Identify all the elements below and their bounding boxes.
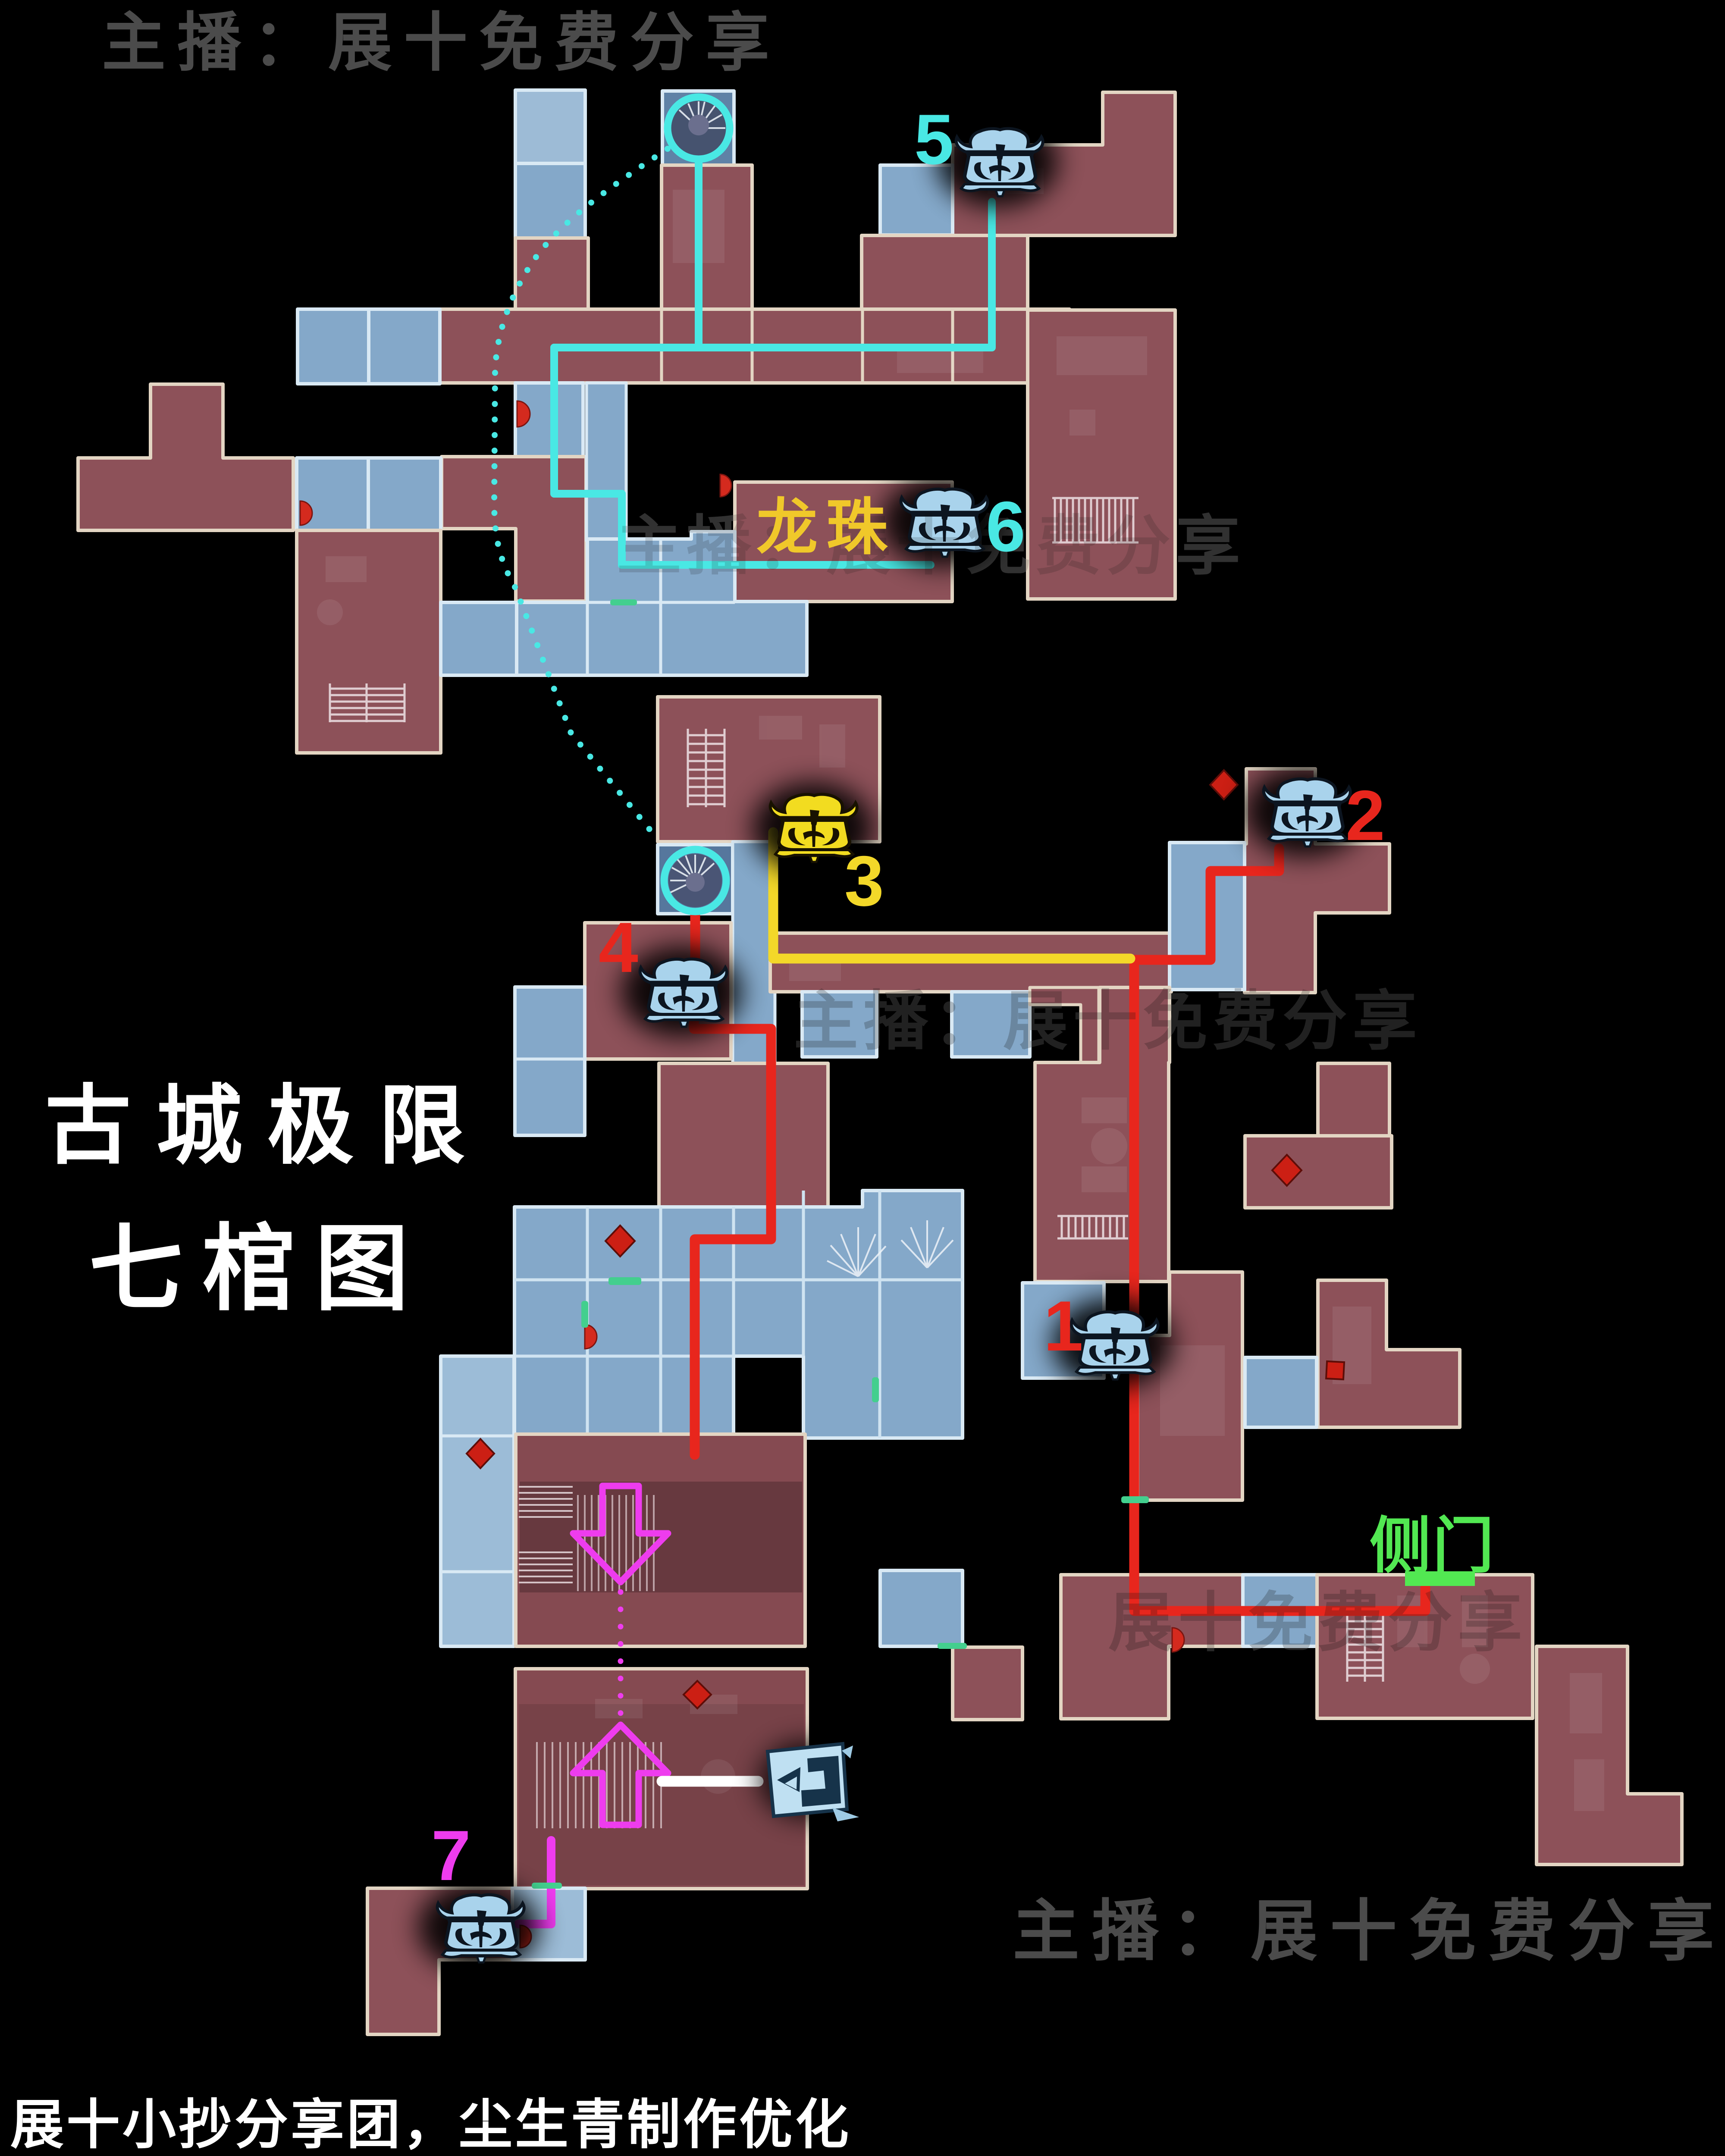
svg-text:主播：展十免费分享: 主播：展十免费分享 [1013, 1894, 1725, 1968]
svg-text:主播：展十免费分享: 主播：展十免费分享 [617, 510, 1245, 582]
svg-text:侧门: 侧门 [1370, 1512, 1496, 1580]
svg-text:主播：展十免费分享: 主播：展十免费分享 [793, 985, 1422, 1057]
svg-text:七棺图: 七棺图 [89, 1217, 428, 1322]
svg-text:展十免费分享: 展十免费分享 [1108, 1586, 1527, 1659]
svg-text:5: 5 [914, 100, 954, 179]
svg-text:龙珠: 龙珠 [756, 493, 896, 562]
svg-text:6: 6 [986, 487, 1026, 566]
svg-text:4: 4 [599, 908, 638, 987]
svg-text:3: 3 [844, 841, 884, 921]
svg-text:展十小抄分享团，尘生青制作优化: 展十小抄分享团，尘生青制作优化 [10, 2095, 851, 2155]
svg-text:1: 1 [1044, 1286, 1083, 1366]
svg-text:2: 2 [1345, 776, 1385, 855]
svg-text:主播：展十免费分享: 主播：展十免费分享 [102, 7, 781, 78]
svg-text:7: 7 [431, 1816, 471, 1895]
svg-text:古城极限: 古城极限 [45, 1078, 490, 1174]
